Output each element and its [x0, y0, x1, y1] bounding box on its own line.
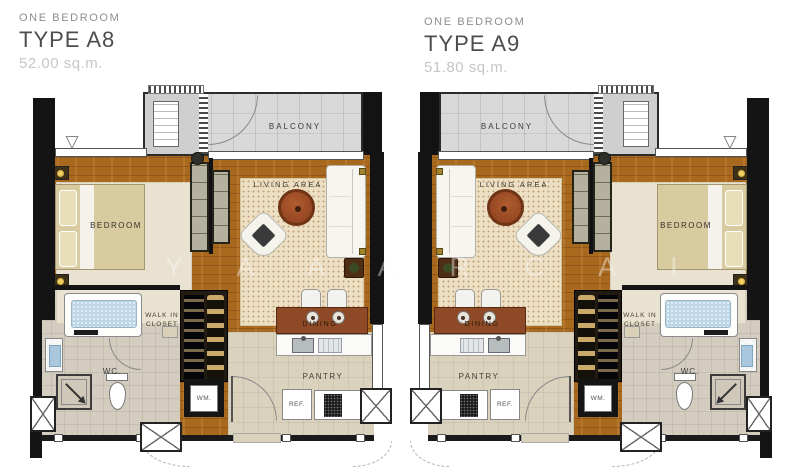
refrigerator: REF. — [490, 389, 520, 420]
hanging-clothes — [184, 295, 204, 379]
walk-in-closet-label: WALK IN — [617, 312, 663, 319]
bath-shelf — [74, 330, 98, 335]
wall-post — [739, 434, 748, 442]
balcony-label: BALCONY — [452, 122, 562, 131]
plan-a8-type: TYPE A8 — [19, 27, 259, 53]
sofa — [436, 165, 476, 258]
tv-cabinet — [212, 170, 230, 244]
wall-post — [282, 434, 291, 442]
walk-in-closet-label: CLOSET — [617, 321, 663, 328]
wardrobe-cabinet — [593, 162, 612, 252]
shower-stall — [710, 374, 746, 410]
tv-cabinet — [572, 170, 590, 244]
wc-partition-wall — [622, 285, 764, 290]
walk-in-wardrobe — [574, 290, 622, 382]
balcony-end-wall — [420, 92, 439, 155]
structural-column — [360, 388, 392, 424]
left-wall — [418, 152, 432, 324]
entrance-door-leaf — [231, 376, 233, 422]
pantry-label: PANTRY — [451, 372, 507, 381]
ac-condenser-unit — [153, 101, 179, 147]
refrigerator: REF. — [282, 389, 312, 420]
balcony-label: BALCONY — [240, 122, 350, 131]
washing-machine: WM. — [584, 385, 612, 412]
plant-pot — [598, 152, 611, 165]
balcony-railing-divider — [199, 94, 208, 154]
wc-label: WC. — [96, 367, 128, 376]
drainboard — [318, 338, 342, 353]
balcony-sliding-door — [438, 151, 594, 160]
coffee-table — [487, 189, 524, 226]
structural-column — [140, 422, 182, 452]
washing-machine-label: WM. — [191, 386, 217, 411]
bath-shelf — [704, 330, 728, 335]
coffee-table — [278, 189, 315, 226]
balcony-top-railing — [148, 85, 204, 94]
refrigerator-label: REF. — [283, 390, 311, 419]
washbasin — [45, 338, 63, 372]
washbasin — [739, 338, 757, 372]
walk-in-wardrobe — [180, 290, 228, 382]
pillow — [725, 190, 743, 226]
refrigerator-label: REF. — [491, 390, 519, 419]
pantry-label: PANTRY — [295, 372, 351, 381]
walk-in-closet-label: CLOSET — [139, 321, 185, 328]
bedroom-label: BEDROOM — [86, 221, 146, 230]
balcony-top-railing — [598, 85, 654, 94]
plan-a8-graphics: BALCONY ▽ BEDROOM LIVING AREA WALK IN C — [30, 88, 392, 468]
balcony-railing-divider — [594, 94, 603, 154]
wardrobe-cabinet — [190, 162, 209, 252]
ac-condenser-unit — [623, 101, 649, 147]
dining-label: DINING — [280, 319, 360, 328]
left-window — [419, 324, 430, 390]
sofa — [326, 165, 366, 258]
structural-column — [30, 396, 56, 432]
wall-post — [54, 434, 63, 442]
living-area-label: LIVING AREA — [462, 180, 566, 189]
pillow — [725, 231, 743, 267]
structural-column — [620, 422, 662, 452]
dining-label: DINING — [442, 319, 522, 328]
wall-post — [437, 434, 446, 442]
entrance-threshold — [233, 433, 281, 443]
bedroom-label: BEDROOM — [656, 221, 716, 230]
wall-post — [511, 434, 520, 442]
right-window — [372, 324, 383, 390]
plant-pot — [191, 152, 204, 165]
wc-partition-wall — [38, 285, 180, 290]
plan-a9-graphics: BALCONY ▽ BEDROOM LIVING AREA WALK IN C — [410, 88, 772, 468]
balcony-end-wall — [363, 92, 382, 155]
plan-a8-category: ONE BEDROOM — [19, 12, 259, 24]
plan-a9-area: 51.80 sq.m. — [424, 59, 664, 76]
corner-wall — [760, 432, 772, 458]
plan-a8-area: 52.00 sq.m. — [19, 55, 259, 72]
closet-shelves — [207, 295, 224, 379]
pillow — [59, 231, 77, 267]
pillow — [59, 190, 77, 226]
structural-column — [410, 388, 442, 424]
entrance-threshold — [521, 433, 569, 443]
sofa-cushion — [436, 168, 443, 175]
bathtub-basin — [665, 300, 731, 328]
left-lower-wall — [33, 320, 42, 402]
bottom-wall — [428, 435, 764, 441]
wall-post — [356, 434, 365, 442]
bathtub-basin — [71, 300, 137, 328]
bottom-wall — [38, 435, 374, 441]
shower-drain-arrow — [65, 383, 85, 403]
closet-shelves — [578, 295, 595, 379]
washing-machine-label: WM. — [585, 386, 611, 411]
balcony-sliding-door — [208, 151, 364, 160]
plan-a9-category: ONE BEDROOM — [424, 16, 664, 28]
hanging-clothes — [598, 295, 618, 379]
window-marker-icon: ▽ — [718, 132, 742, 152]
shower-drain-arrow — [717, 383, 737, 403]
shower-stall — [56, 374, 92, 410]
living-area-label: LIVING AREA — [236, 180, 340, 189]
plan-a8-header: ONE BEDROOM TYPE A8 52.00 sq.m. — [19, 12, 259, 72]
kitchen-sink — [488, 338, 510, 353]
cooktop — [460, 394, 478, 417]
wc-label: WC. — [674, 367, 706, 376]
sofa-cushion — [359, 248, 366, 255]
floorplan-brochure: { "watermark": { "text": "Y A A A R C A … — [0, 0, 800, 469]
side-table — [344, 258, 364, 278]
kitchen-sink — [292, 338, 314, 353]
right-wall — [370, 152, 384, 324]
floorplan-type-a8: BALCONY ▽ BEDROOM LIVING AREA WALK IN C — [30, 88, 392, 468]
corridor-door-swing — [410, 441, 450, 467]
corner-wall — [30, 432, 42, 458]
corridor-door-swing — [352, 441, 392, 467]
drainboard — [460, 338, 484, 353]
plan-a9-type: TYPE A9 — [424, 31, 664, 57]
entrance-door-leaf — [569, 376, 571, 422]
sofa-cushion — [359, 168, 366, 175]
walk-in-closet-label: WALK IN — [139, 312, 185, 319]
plan-a9-header: ONE BEDROOM TYPE A9 51.80 sq.m. — [424, 16, 664, 76]
side-table — [438, 258, 458, 278]
washing-machine: WM. — [190, 385, 218, 412]
sofa-cushion — [436, 248, 443, 255]
right-lower-wall — [760, 320, 769, 402]
cooktop — [324, 394, 342, 417]
window-marker-icon: ▽ — [60, 132, 84, 152]
structural-column — [746, 396, 772, 432]
floorplan-type-a9: BALCONY ▽ BEDROOM LIVING AREA WALK IN C — [410, 88, 772, 468]
